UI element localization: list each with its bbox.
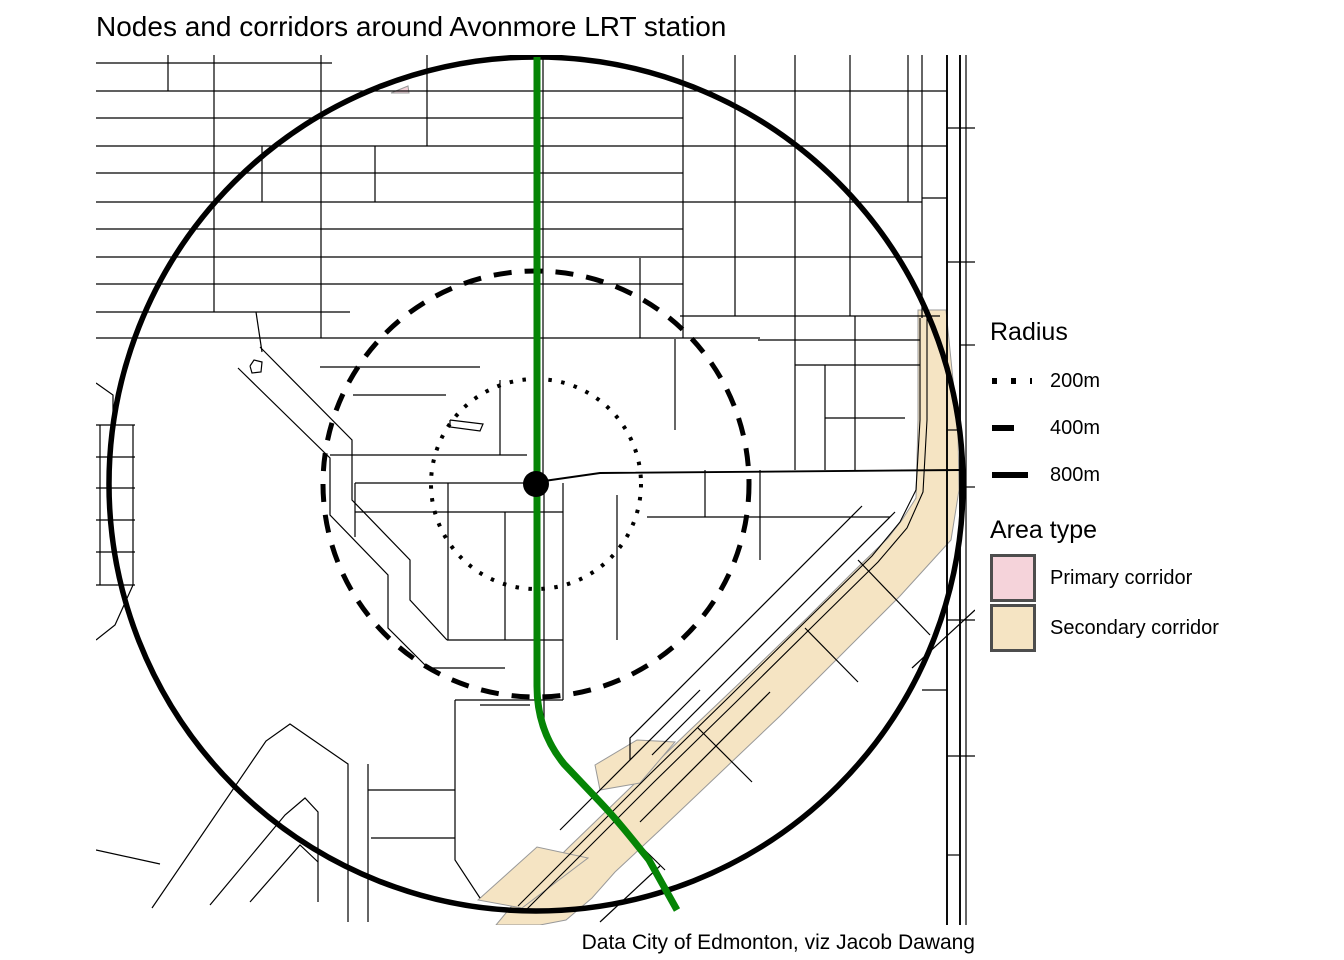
street-segment [450, 420, 483, 431]
legend-item-secondary-corridor: Secondary corridor [990, 604, 1219, 652]
legend-radius-label: 200m [1050, 370, 1100, 393]
legend-item-800m: 800m [990, 460, 1100, 490]
street-segment [256, 312, 262, 352]
street-segment [250, 845, 318, 902]
street-segment [250, 360, 262, 373]
legend-radius: Radius 200m 400m 800m [990, 318, 1344, 353]
station-dot [523, 471, 549, 497]
legend-radius-label: 800m [1050, 464, 1100, 487]
legend-radius-title: Radius [990, 318, 1344, 347]
solid-line-icon [990, 470, 1034, 480]
legend-item-primary-corridor: Primary corridor [990, 554, 1192, 602]
dotted-line-icon [990, 376, 1034, 386]
primary-corridor-swatch [990, 554, 1036, 602]
caption: Data City of Edmonton, viz Jacob Dawang [96, 931, 975, 955]
dashed-line-icon [990, 423, 1034, 433]
legend-radius-label: 400m [1050, 417, 1100, 440]
legend-item-400m: 400m [990, 413, 1100, 443]
page: Nodes and corridors around Avonmore LRT … [0, 0, 1344, 960]
page-title: Nodes and corridors around Avonmore LRT … [96, 10, 726, 44]
secondary-corridor-swatch [990, 604, 1036, 652]
legend-area-label: Primary corridor [1050, 567, 1192, 590]
street-segment [96, 850, 160, 864]
street-segment [96, 383, 113, 425]
legend-item-200m: 200m [990, 366, 1100, 396]
primary-corridor-area [391, 86, 409, 93]
legend-area-label: Secondary corridor [1050, 617, 1219, 640]
legend-area-type: Area type Primary corridor Secondary cor… [990, 516, 1344, 551]
secondary-corridor-area [496, 310, 959, 925]
street-segment [238, 368, 428, 668]
map-canvas [96, 55, 975, 925]
street-segment [260, 347, 447, 640]
legend-area-title: Area type [990, 516, 1344, 545]
street-segment [455, 700, 480, 898]
